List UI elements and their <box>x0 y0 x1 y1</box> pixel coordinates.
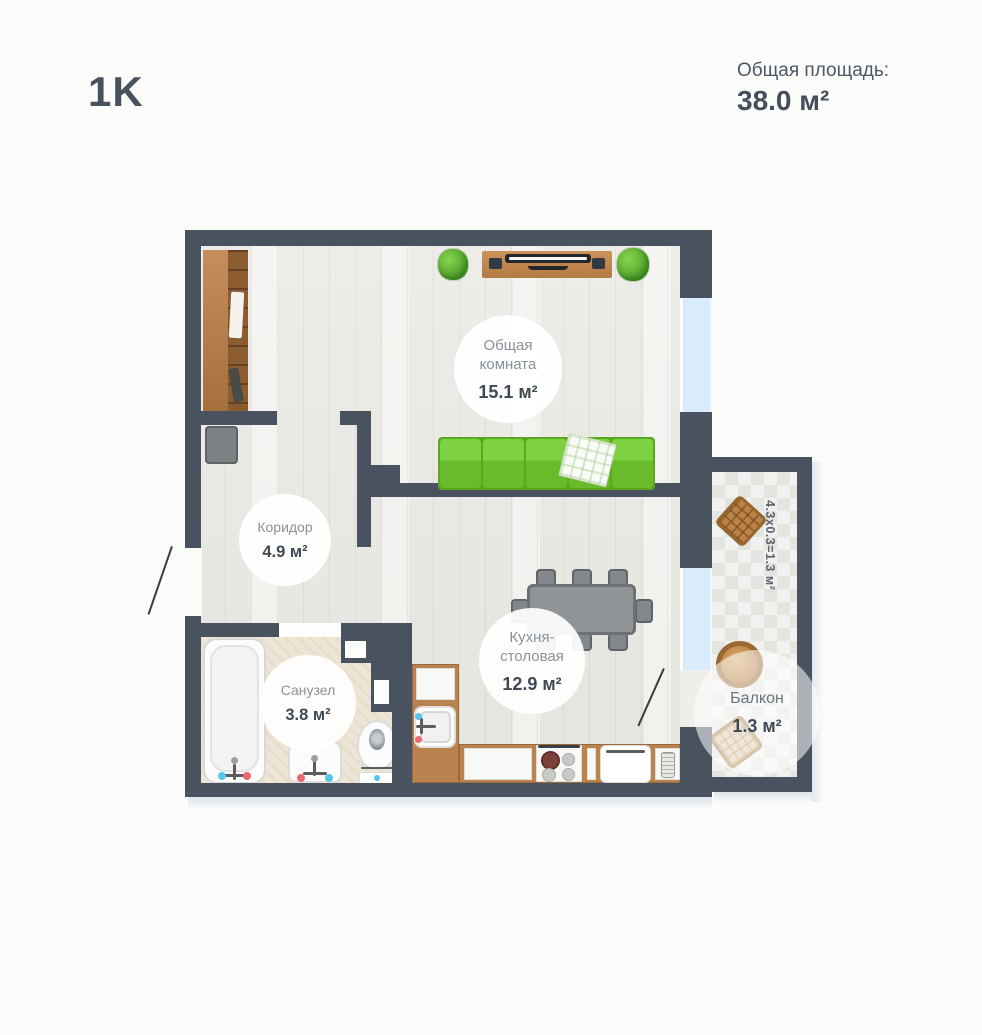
shadow-balcony-right <box>812 462 823 802</box>
wall-left-upper <box>185 230 201 548</box>
speaker-right <box>592 258 605 269</box>
counter-panel-2 <box>587 748 596 780</box>
shaft-niche-1 <box>345 641 366 658</box>
room-label-corridor: Коридор 4.9 м² <box>239 494 331 586</box>
bathtub-hot-dot <box>243 772 251 780</box>
plant-icon-right <box>617 248 649 281</box>
shadow-bottom <box>188 797 712 809</box>
balcony-dimension-note: 4.3x0.3=1.3 м² <box>763 500 777 670</box>
room-name-balcony: Балкон <box>730 689 784 710</box>
wall-right-upper <box>680 230 712 298</box>
room-name-kitchen: Кухня-столовая <box>485 628 578 667</box>
room-name-corridor: Коридор <box>257 518 312 536</box>
plant-icon-left <box>438 249 468 280</box>
room-name-living: Общая комната <box>460 336 555 375</box>
room-label-living: Общая комната 15.1 м² <box>454 315 562 423</box>
room-area-corridor: 4.9 м² <box>262 543 307 562</box>
wall-right-middle <box>680 412 712 568</box>
floor-plan: 4.3x0.3=1.3 м² Общая комната <box>0 0 982 1035</box>
room-area-balcony: 1.3 м² <box>732 716 781 737</box>
washer-lid-line <box>606 750 645 753</box>
balcony-wall-bottom <box>712 777 812 792</box>
living-room-window <box>680 298 712 412</box>
toilet-seat-line <box>361 767 393 769</box>
sink-hot-dot <box>297 774 305 782</box>
room-label-balcony: Балкон 1.3 м² <box>694 650 820 776</box>
hallway-cabinet <box>205 426 238 464</box>
bathtub-cold-dot <box>218 772 226 780</box>
sink-faucet-stem <box>313 761 316 776</box>
kitchen-faucet <box>416 725 436 728</box>
wall-bathroom-right <box>392 623 412 783</box>
room-area-bathroom: 3.8 м² <box>285 706 330 725</box>
shaft-niche-2 <box>374 680 389 704</box>
fridge-icon <box>661 752 675 778</box>
sofa-cushion <box>483 439 524 488</box>
wall-left-lower <box>185 616 201 797</box>
kitchen-upper-panel <box>416 668 455 700</box>
wall-bottom <box>185 783 712 797</box>
dining-chair <box>635 599 653 623</box>
stove-grate <box>538 745 580 748</box>
dining-chair <box>608 633 628 651</box>
bathtub-drain <box>231 757 238 764</box>
wardrobe-item <box>229 292 244 339</box>
bathroom-door-leaf <box>279 623 341 637</box>
room-area-kitchen: 12.9 м² <box>502 674 561 695</box>
entrance-door-swing <box>148 546 173 615</box>
bathtub-inner <box>210 645 259 772</box>
room-area-living: 15.1 м² <box>478 382 537 403</box>
wall-top <box>185 230 712 246</box>
sofa-cushion <box>440 439 481 488</box>
room-label-bathroom: Санузел 3.8 м² <box>260 655 356 751</box>
kitchen-faucet-stem <box>420 718 423 734</box>
sofa-cushion <box>612 439 653 488</box>
toilet-button <box>374 775 380 781</box>
tv-soundbar <box>528 266 568 270</box>
tv-screen-line <box>509 257 587 260</box>
wall-connector-block <box>371 465 400 497</box>
shadow-balcony-bottom <box>714 792 812 803</box>
kitchen-hot-dot <box>415 736 422 743</box>
entrance-opening <box>185 548 202 616</box>
kitchen-window <box>680 568 712 670</box>
speaker-left <box>489 258 502 269</box>
counter-panel-1 <box>464 748 532 780</box>
room-label-kitchen: Кухня-столовая 12.9 м² <box>479 608 585 714</box>
sink-dot-top <box>311 755 318 762</box>
sink-cold-dot <box>325 774 333 782</box>
toilet-hole <box>369 729 385 750</box>
room-name-bathroom: Санузел <box>281 681 336 699</box>
wall-corridor-vertical <box>357 411 371 547</box>
burner-1 <box>541 751 560 770</box>
wall-bathroom-top-a <box>199 623 279 637</box>
wall-living-corridor-a <box>199 411 277 425</box>
kitchen-cold-dot <box>415 713 422 720</box>
burner-2 <box>562 753 575 766</box>
burner-4 <box>562 768 575 781</box>
burner-3 <box>542 768 556 782</box>
sofa <box>438 437 655 490</box>
bathtub-faucet-stem <box>233 764 236 780</box>
